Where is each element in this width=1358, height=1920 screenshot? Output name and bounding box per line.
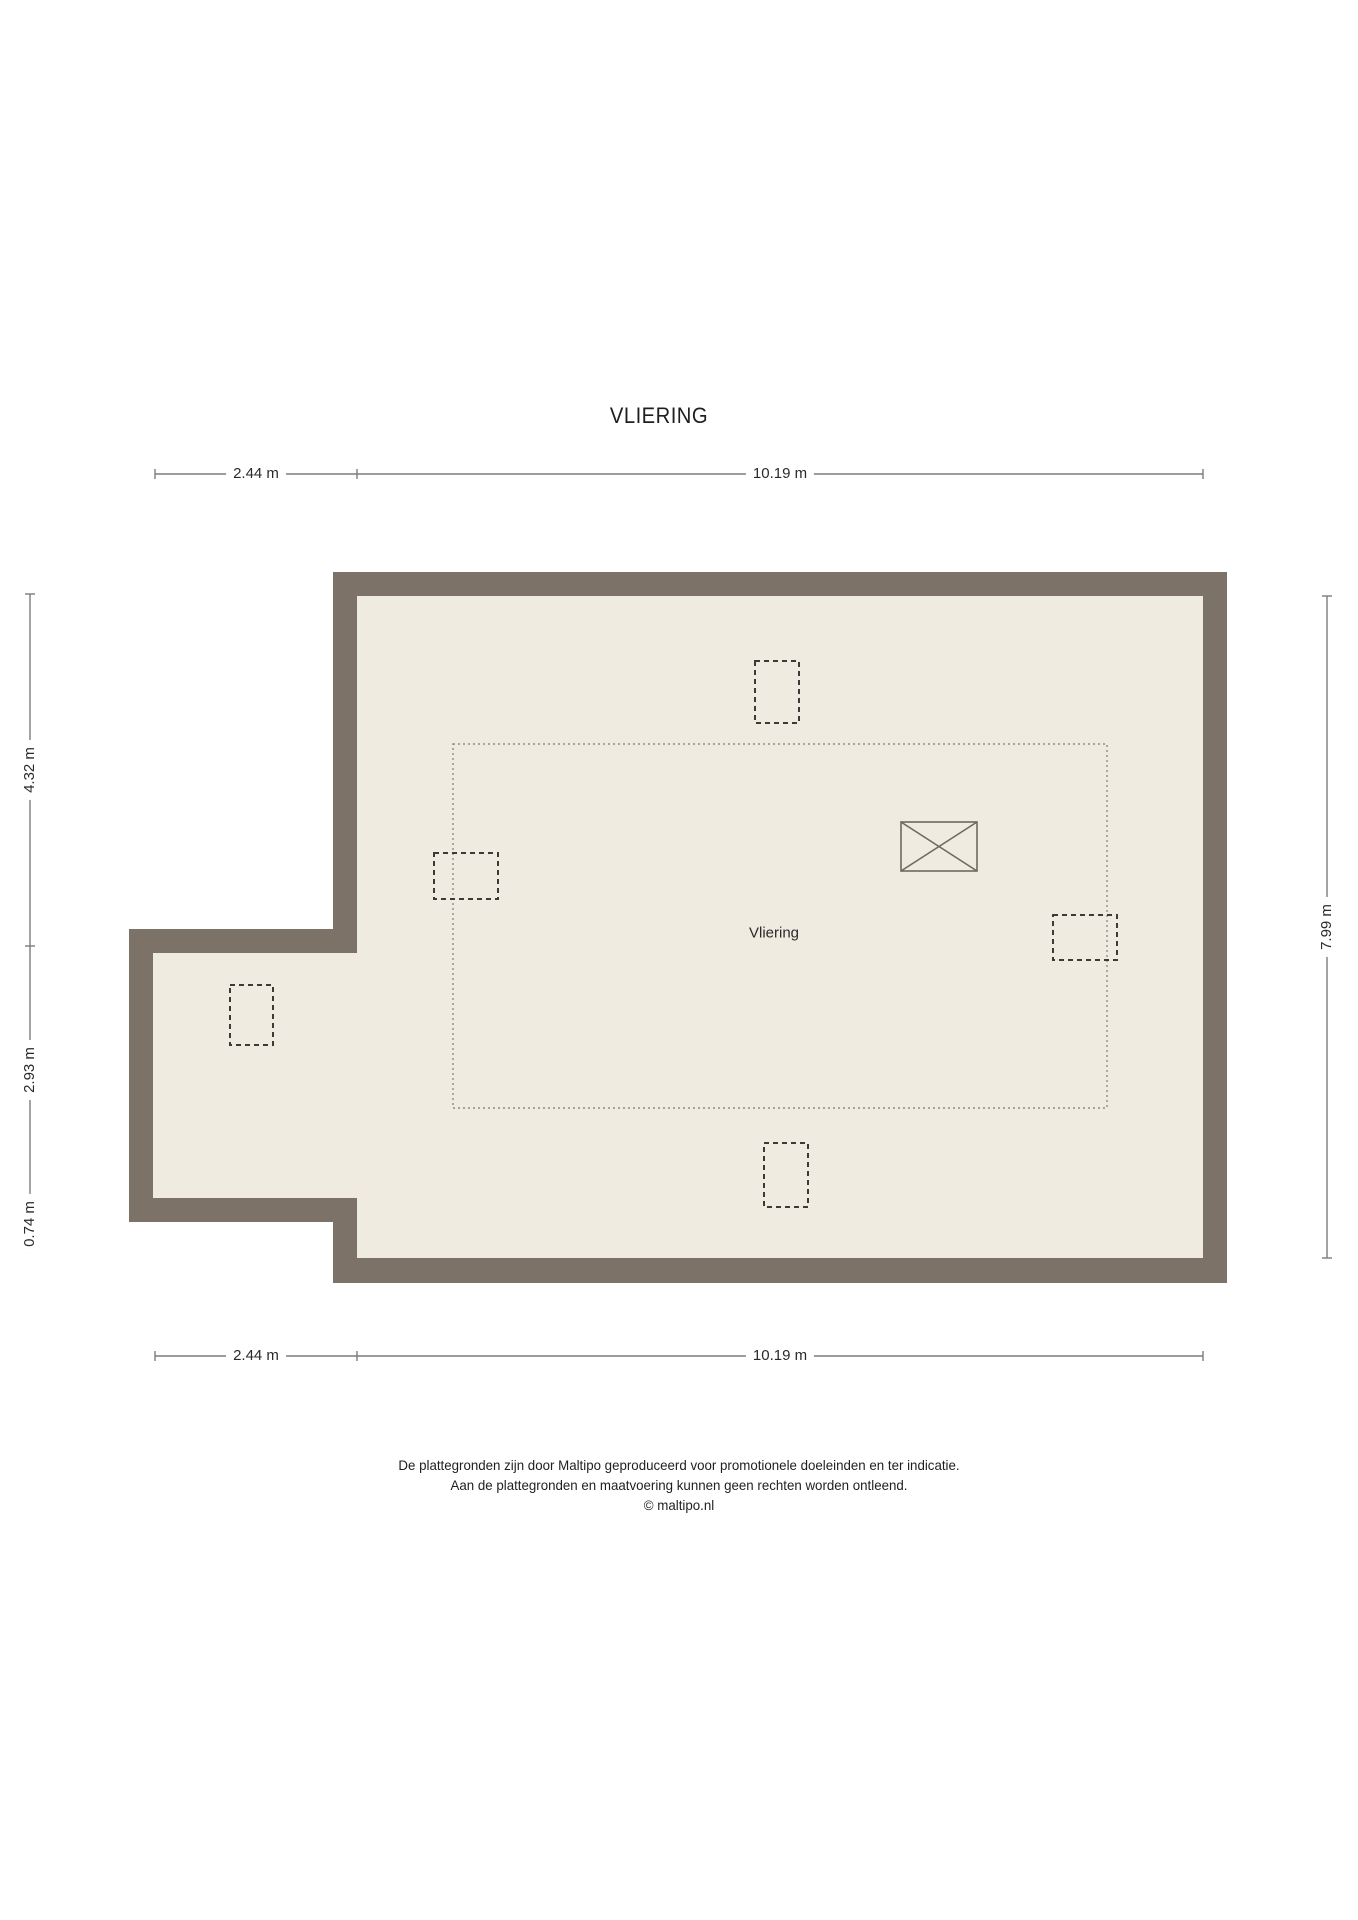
bottom-dimension-line <box>155 1351 1203 1361</box>
footer-line-3: © maltipo.nl <box>34 1495 1324 1515</box>
left-dimension-line <box>25 594 35 1253</box>
room-label: Vliering <box>749 925 799 942</box>
top-dimension-line <box>155 469 1203 479</box>
dim-top-right-label: 10.19 m <box>746 465 814 483</box>
floor-plan-floor <box>153 596 1203 1258</box>
dim-left-top-label: 4.32 m <box>21 740 39 800</box>
dim-left-bottom-label: 0.74 m <box>21 1194 39 1254</box>
dim-right-label: 7.99 m <box>1318 897 1336 957</box>
dim-top-left-label: 2.44 m <box>226 465 286 483</box>
floorplan-page: VLIERING 2.44 m 10.19 m 2.44 m 10.19 m 4… <box>0 0 1358 1920</box>
footer-line-2: Aan de plattegronden en maatvoering kunn… <box>34 1475 1324 1495</box>
dim-left-middle-label: 2.93 m <box>21 1040 39 1100</box>
footer-disclaimer: De plattegronden zijn door Maltipo gepro… <box>0 1455 1358 1515</box>
floor-plan <box>0 0 1358 1920</box>
footer-line-1: De plattegronden zijn door Maltipo gepro… <box>34 1455 1324 1475</box>
dim-bottom-right-label: 10.19 m <box>746 1347 814 1365</box>
dim-bottom-left-label: 2.44 m <box>226 1347 286 1365</box>
page-title: VLIERING <box>610 403 708 429</box>
